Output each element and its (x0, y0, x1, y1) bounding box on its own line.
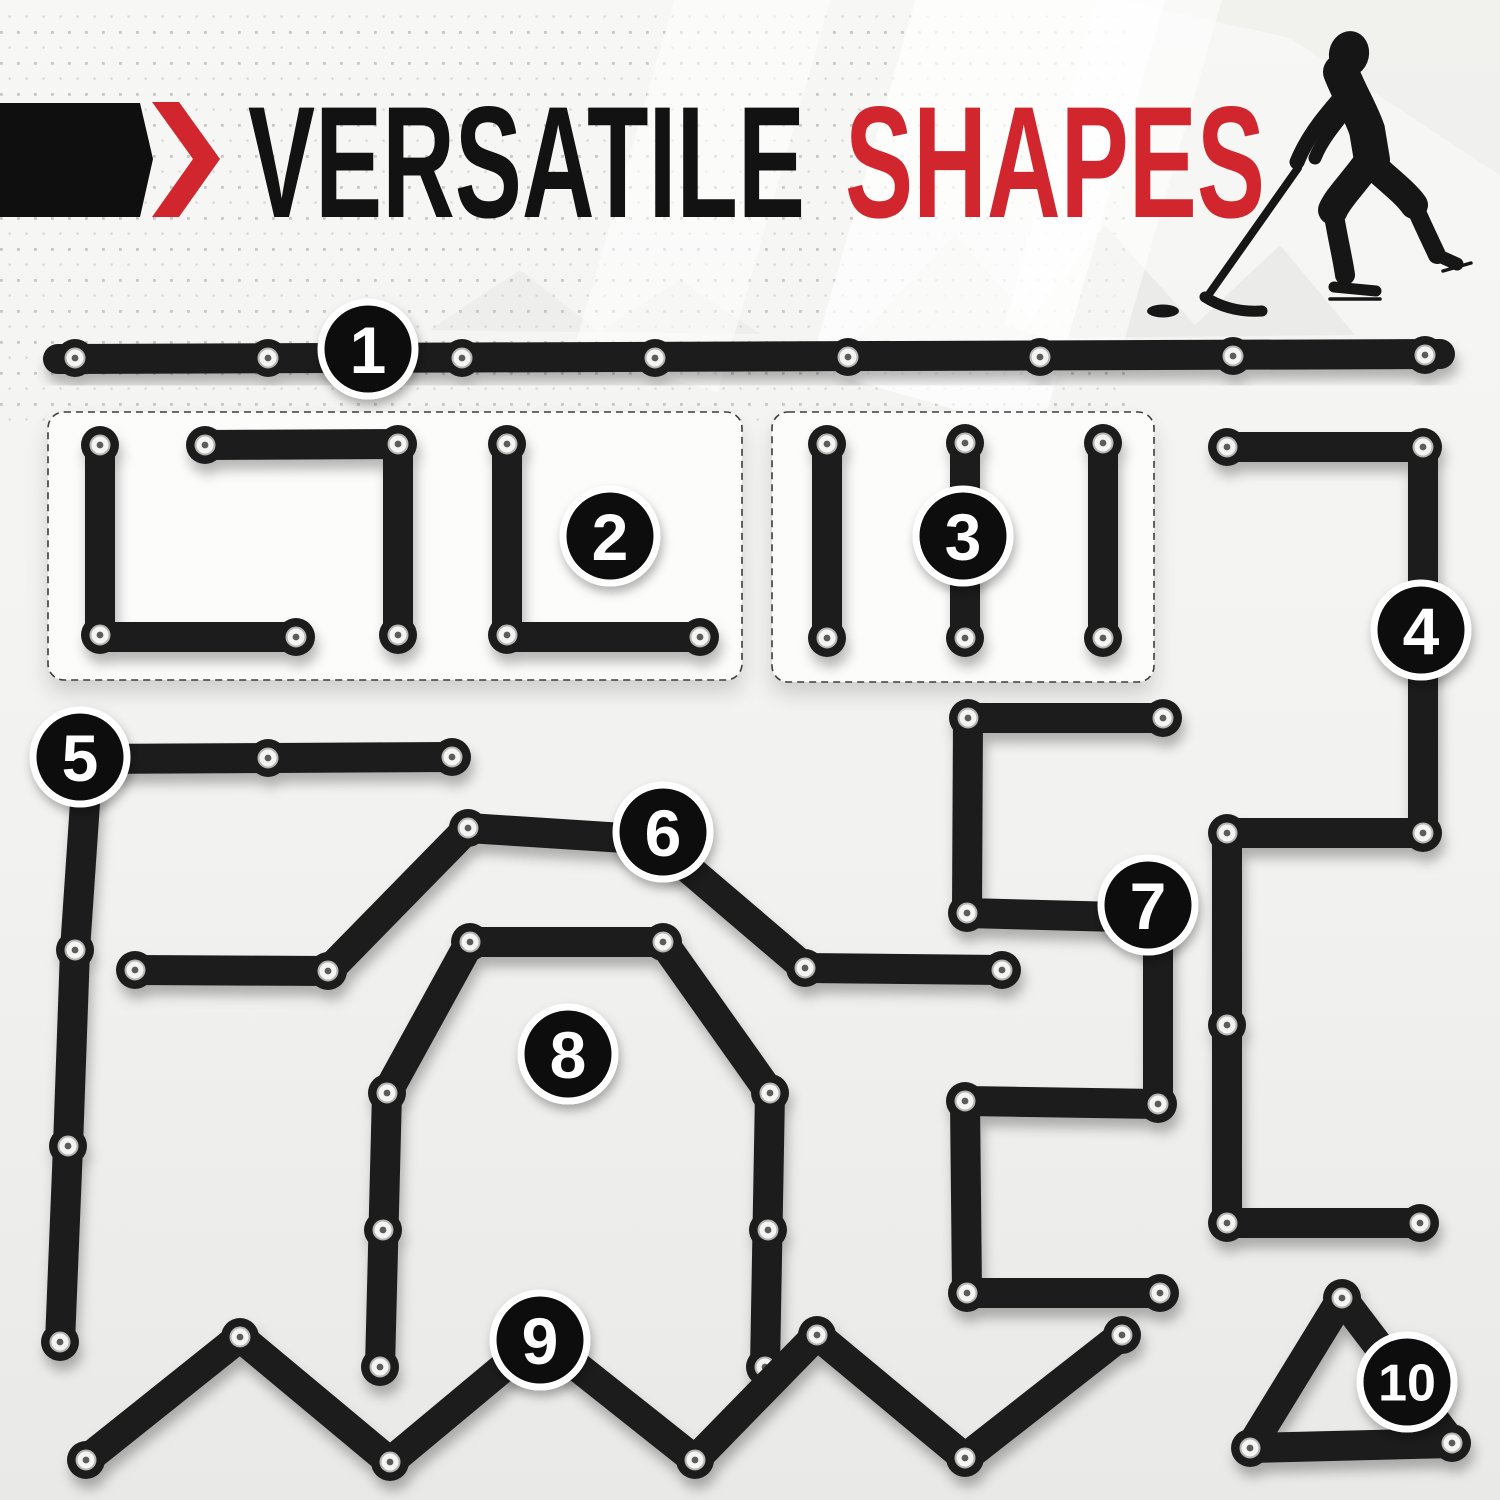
badge-9-label: 9 (522, 1304, 559, 1378)
rivet-center (824, 441, 831, 448)
rivet-center (1100, 635, 1107, 642)
badge-6: 6 (616, 785, 710, 879)
rivet-center (1119, 1332, 1126, 1339)
badge-8-label: 8 (550, 1018, 587, 1092)
rivet-center (1224, 444, 1231, 451)
badge-8: 8 (521, 1007, 615, 1101)
rivet-center (1230, 353, 1237, 360)
rivet-center (1247, 1445, 1254, 1452)
rivet-center (504, 632, 511, 639)
poster: VERSATILE SHAPES 12345678910 (0, 0, 1500, 1500)
rivet-center (660, 939, 667, 946)
rivet-center (293, 634, 300, 641)
rivet-center (465, 825, 472, 832)
rivet-center (692, 1457, 699, 1464)
rivet-center (697, 634, 704, 641)
rivet-center (380, 1227, 387, 1234)
rivet-center (132, 967, 139, 974)
rivet-center (237, 1334, 244, 1341)
rivet-center (1224, 1220, 1231, 1227)
badge-2-label: 2 (592, 500, 629, 574)
rivet-center (1420, 444, 1427, 451)
rivet-center (824, 635, 831, 642)
badge-5-label: 5 (62, 721, 99, 795)
badge-1-label: 1 (350, 313, 387, 387)
rivet-center (767, 1090, 774, 1097)
rivet-center (845, 354, 852, 361)
badge-10: 10 (1360, 1335, 1454, 1429)
badge-9: 9 (493, 1293, 587, 1387)
rivet-center (395, 632, 402, 639)
versatile-shapes-infographic: VERSATILE SHAPES 12345678910 (0, 0, 1500, 1500)
badge-3-label: 3 (945, 500, 982, 574)
rivet-center (387, 1459, 394, 1466)
rivet-center (802, 965, 809, 972)
badge-5: 5 (33, 710, 127, 804)
rivet-center (202, 442, 209, 449)
badge-3: 3 (916, 489, 1010, 583)
page-title-black: VERSATILE (248, 73, 805, 251)
rivet-center (964, 1290, 971, 1297)
badge-10-label: 10 (1378, 1355, 1436, 1413)
badge-2: 2 (563, 489, 657, 583)
rivet-center (1449, 1440, 1456, 1447)
rivet-center (652, 355, 659, 362)
rivet-center (1037, 354, 1044, 361)
rivet-center (467, 939, 474, 946)
rivet-center (1155, 1101, 1162, 1108)
rivet-center (962, 440, 969, 447)
banner-bar (0, 103, 153, 217)
rivet-center (1100, 440, 1107, 447)
rivet-center (265, 355, 272, 362)
rivet-center (325, 968, 332, 975)
rivet-center (1224, 830, 1231, 837)
badge-4-label: 4 (1403, 594, 1440, 668)
shape-1 (56, 336, 1444, 377)
badge-7: 7 (1101, 858, 1195, 952)
rivet-center (1417, 1220, 1424, 1227)
rivet-center (962, 1455, 969, 1462)
rivet-center (57, 1339, 64, 1346)
rivet-center (449, 754, 456, 761)
rivet-center (962, 1098, 969, 1105)
rivet-center (814, 1332, 821, 1339)
rivet-center (1420, 830, 1427, 837)
rivet-center (965, 715, 972, 722)
page-title-red: SHAPES (845, 73, 1265, 251)
rivet-center (1157, 1290, 1164, 1297)
rivet-center (97, 442, 104, 449)
rivet-center (265, 755, 272, 762)
rivet-center (964, 910, 971, 917)
rivet-center (962, 635, 969, 642)
rivet-center (1422, 352, 1429, 359)
badge-4: 4 (1374, 583, 1468, 677)
rivet-center (72, 947, 79, 954)
rivet-center (377, 1364, 384, 1371)
badge-7-label: 7 (1130, 869, 1167, 943)
rivet-center (83, 1457, 90, 1464)
rivet-center (999, 967, 1006, 974)
rivet-center (395, 441, 402, 448)
rivet-center (65, 1143, 72, 1150)
rivet-center (765, 1227, 772, 1234)
badge-1: 1 (321, 302, 415, 396)
puck-icon (1147, 305, 1179, 318)
rivet-center (1224, 1022, 1231, 1029)
rivet-center (1160, 715, 1167, 722)
rivet-center (1339, 1295, 1346, 1302)
rivet-center (384, 1090, 391, 1097)
badge-6-label: 6 (645, 796, 682, 870)
rivet-center (459, 355, 466, 362)
rivet-center (97, 632, 104, 639)
rivet-center (72, 355, 79, 362)
rivet-center (504, 441, 511, 448)
